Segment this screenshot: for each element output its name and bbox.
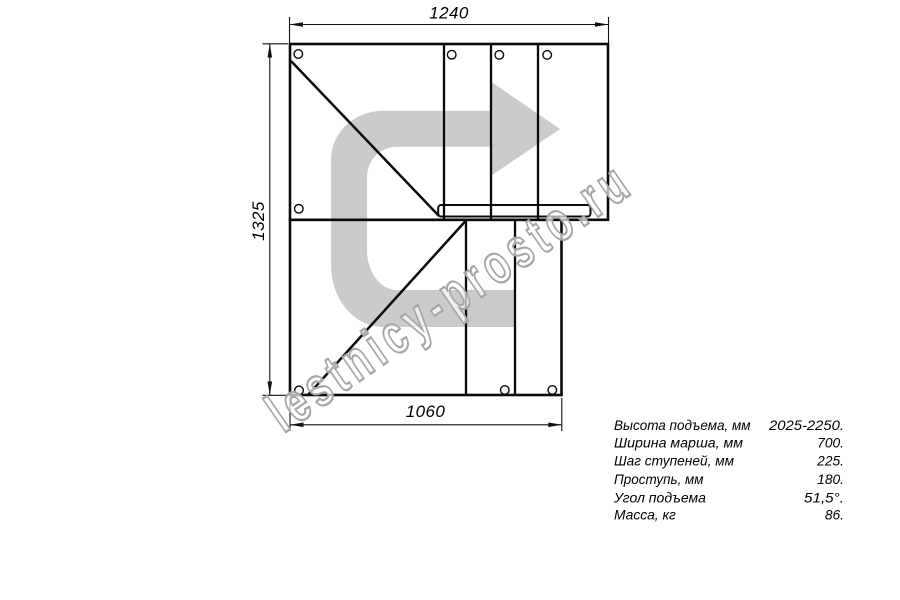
svg-text:1325: 1325: [249, 201, 268, 241]
svg-text:51,5°.: 51,5°.: [804, 491, 844, 506]
svg-text:1060: 1060: [406, 402, 446, 421]
svg-text:Угол подъема: Угол подъема: [613, 491, 706, 506]
svg-text:700.: 700.: [817, 436, 844, 451]
svg-text:86.: 86.: [825, 507, 844, 522]
svg-text:2025-2250.: 2025-2250.: [768, 418, 844, 433]
svg-text:180.: 180.: [817, 472, 844, 487]
svg-text:Шаг ступеней, мм: Шаг ступеней, мм: [614, 454, 735, 469]
svg-text:Проступь, мм: Проступь, мм: [614, 472, 704, 487]
svg-text:Высота подъема, мм: Высота подъема, мм: [614, 418, 751, 433]
svg-text:Ширина марша, мм: Ширина марша, мм: [614, 436, 744, 451]
svg-text:1240: 1240: [429, 3, 469, 22]
svg-text:225.: 225.: [816, 454, 844, 469]
svg-text:Масса, кг: Масса, кг: [614, 507, 676, 522]
